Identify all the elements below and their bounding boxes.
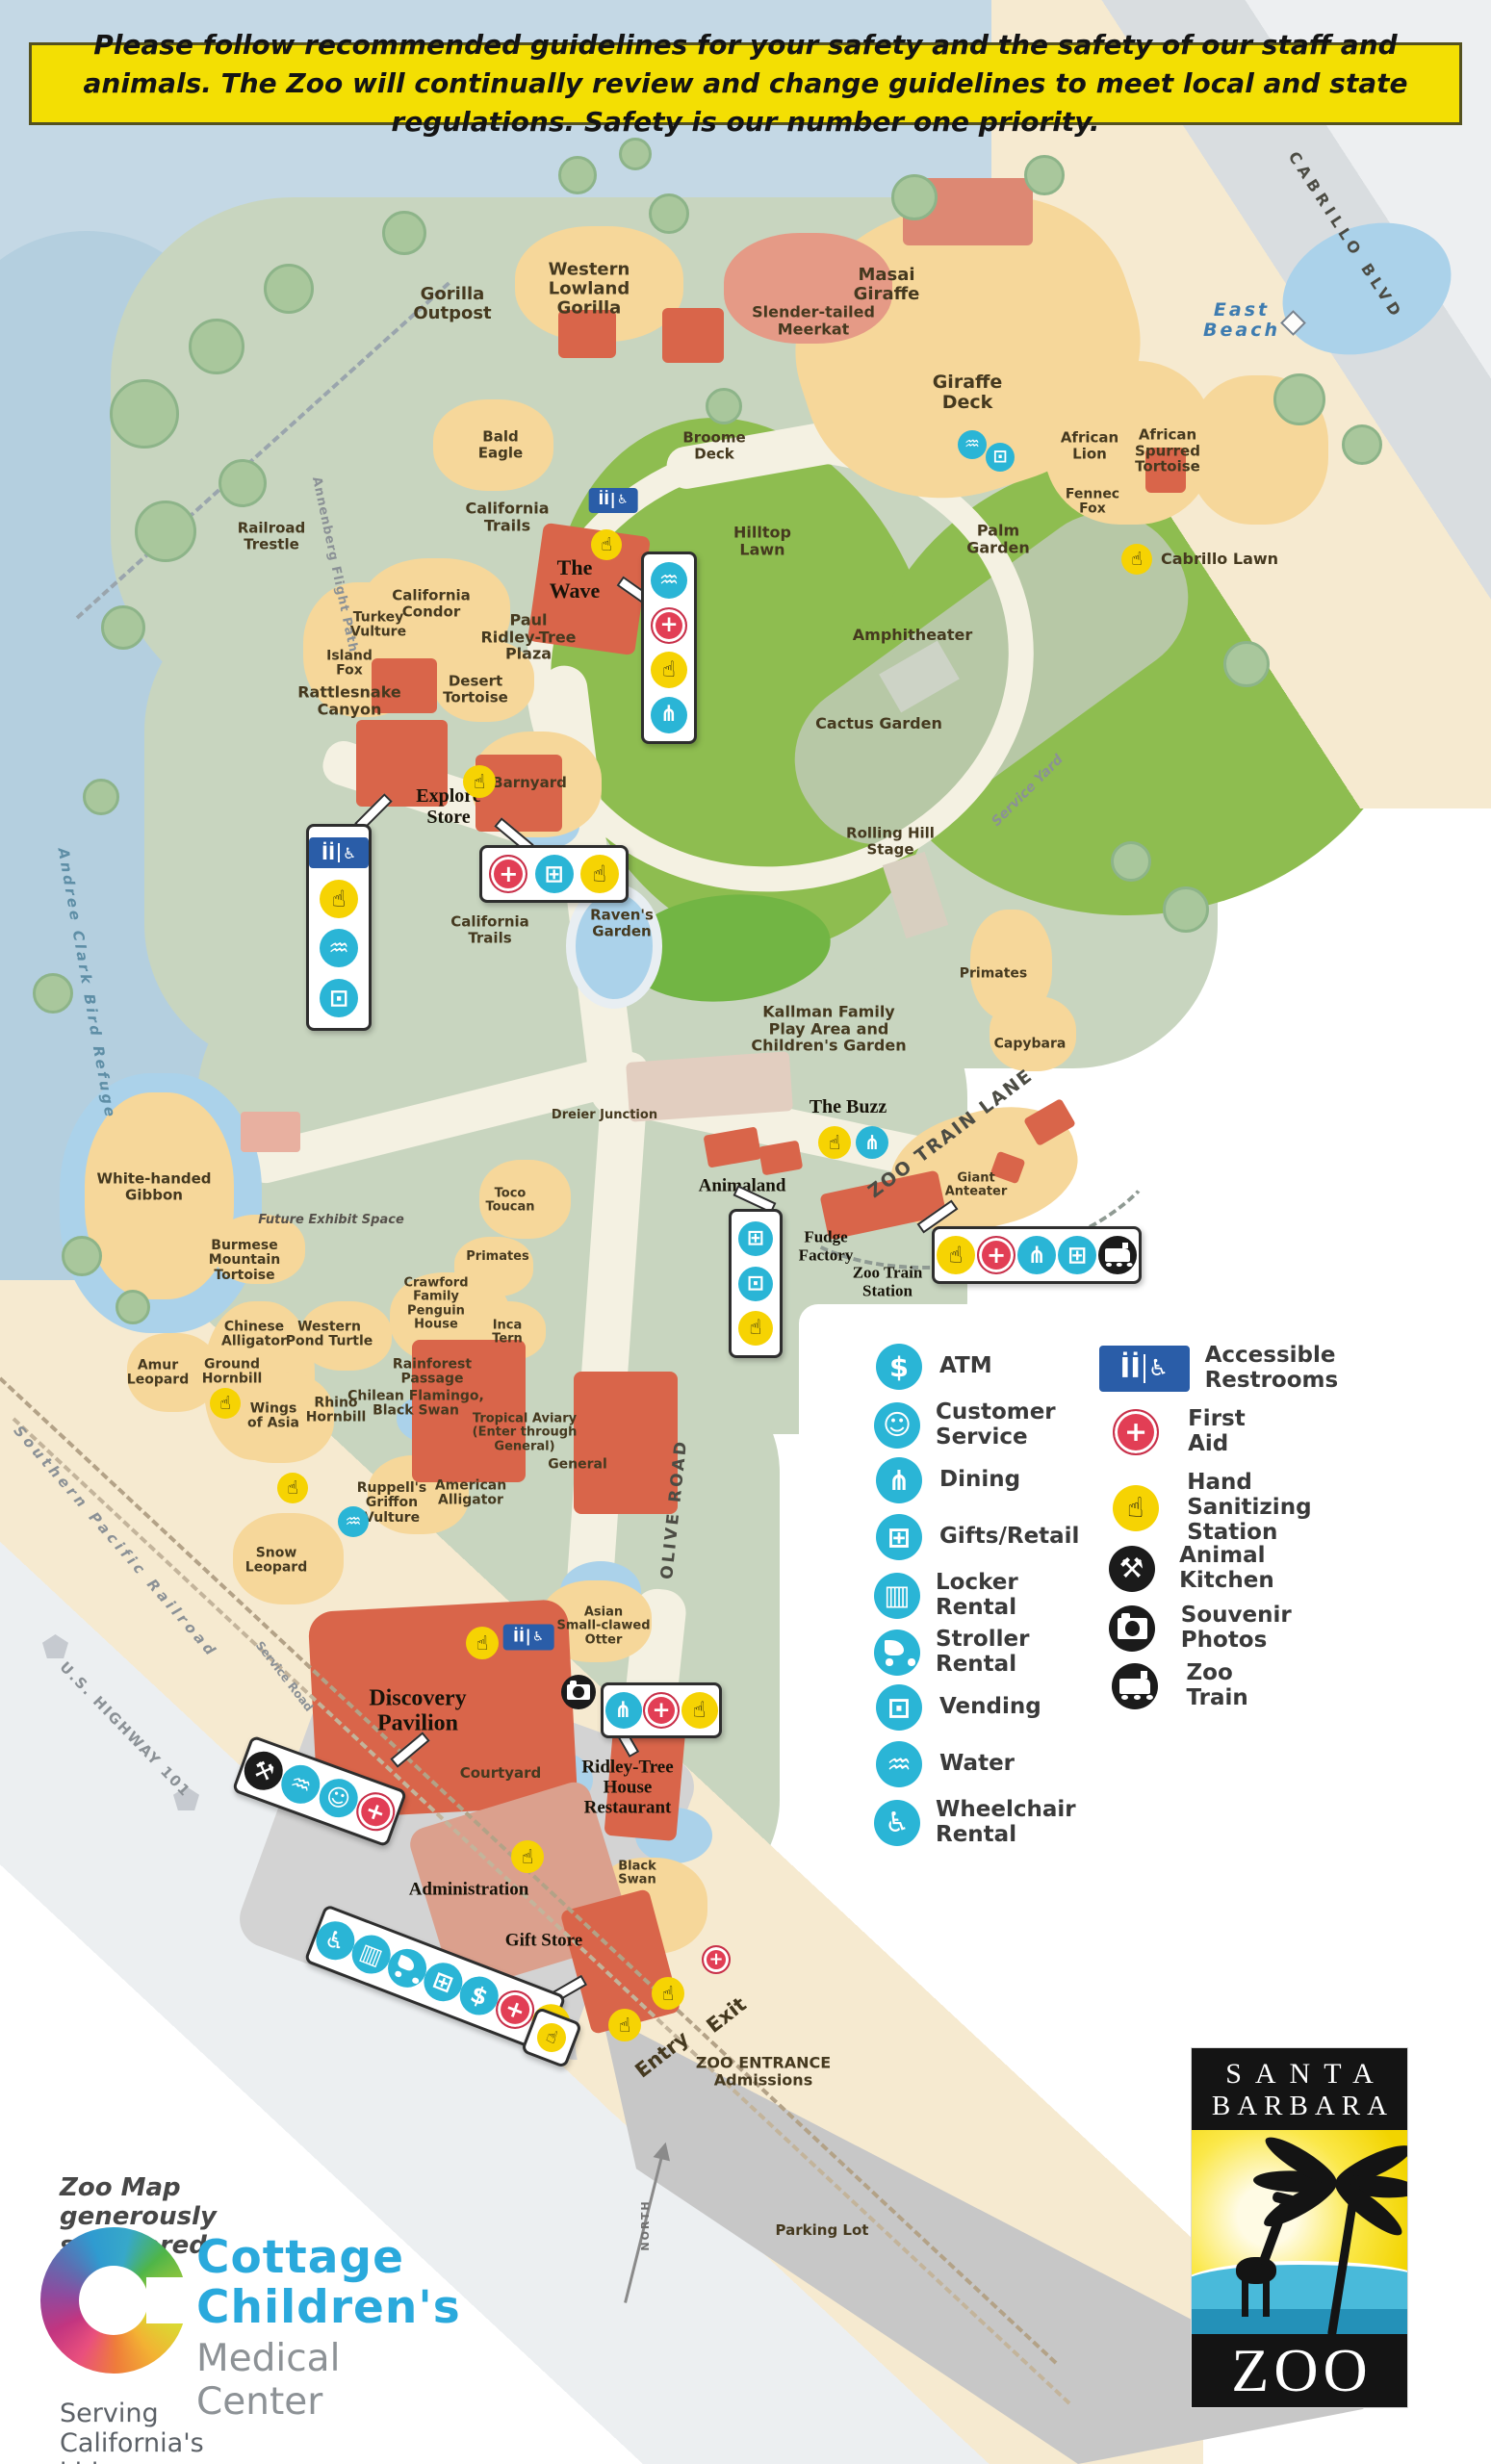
map-label: Island Fox bbox=[326, 650, 373, 680]
gifts-icon: ⊞ bbox=[535, 855, 574, 893]
map-label: Giraffe Deck bbox=[933, 372, 1003, 413]
legend-item-locker: ▥Locker Rental bbox=[874, 1571, 1022, 1621]
map-label: Slender-tailed Meerkat bbox=[752, 303, 875, 337]
legend-icon-wrap: $ bbox=[874, 1344, 924, 1390]
map-label: Western Pond Turtle bbox=[286, 1321, 373, 1350]
sponsor-name-line2: Children's bbox=[196, 2281, 461, 2334]
map-label: Paul Ridley-Tree Plaza bbox=[480, 612, 576, 663]
firstaid-icon: + bbox=[702, 1945, 731, 1974]
tree bbox=[219, 459, 267, 507]
legend-item-gifts: ⊞Gifts/Retail bbox=[874, 1514, 1079, 1560]
legend-item-firstaid: +First Aid bbox=[1099, 1407, 1269, 1457]
legend-icon-wrap: ☺ bbox=[874, 1402, 920, 1449]
hand-icon: ☝ bbox=[608, 2009, 641, 2041]
map-label: California Trails bbox=[465, 500, 549, 533]
map-label: General bbox=[548, 1457, 607, 1472]
map-label: Kallman Family Play Area and Children's … bbox=[751, 1004, 906, 1055]
dining-icon: ⋔ bbox=[651, 697, 687, 733]
legend-item-wheelchair: ♿Wheelchair Rental bbox=[874, 1798, 1080, 1848]
tree bbox=[116, 1290, 150, 1324]
dining-icon: ⋔ bbox=[605, 1692, 642, 1729]
cottage-logo-hole bbox=[79, 2266, 149, 2336]
legend-icon-wrap bbox=[1099, 1605, 1166, 1652]
legend-label: Dining bbox=[939, 1468, 1020, 1493]
water-icon: ♒ bbox=[651, 562, 687, 599]
map-callout: İİ♿☝♒⊡ bbox=[306, 824, 372, 1031]
legend-item-hand: ☝Hand Sanitizing Station bbox=[1099, 1471, 1335, 1545]
map-label: Dreier Junction bbox=[552, 1109, 657, 1122]
legend-label: Customer Service bbox=[936, 1400, 1060, 1450]
firstaid-icon: + bbox=[1113, 1409, 1159, 1455]
map-label: Capybara bbox=[994, 1037, 1067, 1051]
restrooms-icon: İİ♿ bbox=[1099, 1346, 1190, 1392]
map-label: Black Swan bbox=[618, 1861, 656, 1888]
map-label: The Wave bbox=[550, 556, 601, 603]
map-label: Inca Tern bbox=[492, 1320, 523, 1347]
dining-icon: ⋔ bbox=[856, 1126, 888, 1159]
legend-label: Gifts/Retail bbox=[939, 1525, 1079, 1550]
safety-banner: Please follow recommended guidelines for… bbox=[29, 42, 1462, 125]
general-building bbox=[574, 1372, 678, 1514]
sponsor-name-line1: Cottage bbox=[196, 2231, 404, 2284]
map-label: Ridley-Tree House Restaurant bbox=[581, 1758, 673, 1819]
map-label: American Alligator bbox=[435, 1479, 506, 1509]
legend-icon-wrap bbox=[1099, 1663, 1170, 1709]
legend-label: Zoo Train bbox=[1186, 1661, 1272, 1711]
map-label: Palm Garden bbox=[966, 522, 1030, 555]
legend-item-customer: ☺Customer Service bbox=[874, 1400, 1060, 1450]
map-label: Burmese Mountain Tortoise bbox=[209, 1239, 280, 1283]
map-label: Rattlesnake Canyon bbox=[297, 683, 401, 717]
legend-icon-wrap: ⋔ bbox=[874, 1457, 924, 1503]
firstaid-icon: + bbox=[977, 1236, 1015, 1274]
hand-icon: ☝ bbox=[681, 1692, 718, 1729]
map-callout: +⊞☝ bbox=[479, 845, 629, 903]
tree bbox=[619, 138, 652, 170]
tree bbox=[83, 779, 119, 815]
map-label: Masai Giraffe bbox=[854, 266, 920, 304]
atm-icon: $ bbox=[876, 1344, 922, 1390]
map-label: Gorilla Outpost bbox=[413, 285, 491, 323]
map-label: Courtyard bbox=[460, 1765, 542, 1782]
legend-item-stroller: Stroller Rental bbox=[874, 1628, 1033, 1678]
map-label: Amphitheater bbox=[853, 627, 972, 644]
tree bbox=[1024, 155, 1065, 195]
giraffe-leg bbox=[1263, 2280, 1270, 2317]
map-label: Ground Hornbill bbox=[202, 1358, 263, 1388]
map-label: Barnyard bbox=[492, 775, 567, 791]
restrooms-icon: İİ♿ bbox=[589, 488, 638, 513]
map-label: Western Lowland Gorilla bbox=[549, 260, 630, 317]
firstaid-icon: + bbox=[651, 607, 687, 644]
tree bbox=[891, 174, 938, 220]
firstaid-icon: + bbox=[643, 1692, 680, 1729]
hand-icon: ☝ bbox=[651, 652, 687, 688]
vending-icon: ⊡ bbox=[320, 979, 358, 1017]
legend-icon-wrap: ☝ bbox=[1099, 1485, 1171, 1531]
water-icon: ♒ bbox=[958, 430, 987, 459]
cottage-logo-gap bbox=[146, 2277, 196, 2323]
map-label: Giant Anteater bbox=[945, 1172, 1008, 1200]
water-icon: ♒ bbox=[338, 1506, 369, 1537]
legend-icon-wrap: ▥ bbox=[874, 1573, 920, 1619]
legend-item-atm: $ATM bbox=[874, 1344, 992, 1390]
sponsor-name-line3: Medical Center bbox=[196, 2337, 340, 2424]
map-label: Snow Leopard bbox=[245, 1547, 307, 1577]
legend-label: Vending bbox=[939, 1695, 1041, 1720]
customer-icon: ☺ bbox=[874, 1402, 920, 1449]
map-label: African Lion bbox=[1061, 430, 1118, 462]
zoo-logo-artwork bbox=[1192, 2130, 1407, 2334]
hand-icon: ☝ bbox=[738, 1311, 773, 1346]
legend-icon-wrap: ⊞ bbox=[874, 1514, 924, 1560]
legend-item-animalkitchen: ⚒Animal Kitchen bbox=[1099, 1544, 1306, 1594]
legend-label: Hand Sanitizing Station bbox=[1187, 1471, 1335, 1545]
map-label: Amur Leopard bbox=[127, 1359, 189, 1389]
legend-label: Accessible Restrooms bbox=[1205, 1344, 1345, 1394]
gifts-icon: ⊞ bbox=[1058, 1236, 1096, 1274]
water-icon: ♒ bbox=[276, 1759, 325, 1809]
map-label: The Buzz bbox=[810, 1096, 887, 1117]
zoo-logo-footer: ZOO bbox=[1192, 2334, 1407, 2407]
hand-icon: ☝ bbox=[652, 1977, 684, 2010]
dining-icon: ⋔ bbox=[1017, 1236, 1056, 1274]
zoo-logo-header: SANTA BARBARA bbox=[1192, 2048, 1407, 2130]
camera-icon bbox=[561, 1675, 596, 1709]
map-label: Wings of Asia bbox=[247, 1402, 299, 1432]
map-label: Parking Lot bbox=[776, 2222, 869, 2239]
tree bbox=[110, 379, 179, 449]
legend-label: Stroller Rental bbox=[936, 1628, 1033, 1678]
legend-icon-wrap: ⊡ bbox=[874, 1684, 924, 1731]
hand-icon: ☝ bbox=[320, 880, 358, 918]
building bbox=[241, 1112, 300, 1152]
firstaid-icon: + bbox=[350, 1786, 399, 1835]
tree bbox=[1163, 886, 1209, 933]
logo-wave-dark bbox=[1192, 2309, 1407, 2334]
map-label: Zoo Train Station bbox=[853, 1264, 923, 1299]
dining-icon: ⋔ bbox=[876, 1457, 922, 1503]
map-label: White-handed Gibbon bbox=[96, 1171, 211, 1203]
hand-icon: ☝ bbox=[466, 1627, 499, 1659]
legend-icon-wrap: ⚒ bbox=[1099, 1546, 1164, 1592]
restrooms-icon: İİ♿ bbox=[309, 837, 369, 868]
legend-label: ATM bbox=[939, 1354, 992, 1379]
map-callout: ☝+⋔⊞ bbox=[932, 1226, 1142, 1284]
map-label: Primates bbox=[466, 1250, 528, 1264]
map-label: Hilltop Lawn bbox=[733, 524, 791, 557]
tree bbox=[1223, 641, 1270, 687]
legend-item-water: ♒Water bbox=[874, 1741, 1015, 1787]
map-label: Primates bbox=[960, 966, 1028, 981]
hand-icon: ☝ bbox=[591, 529, 622, 560]
tree bbox=[189, 319, 244, 374]
locker-icon: ▥ bbox=[874, 1573, 920, 1619]
map-label: Turkey Vulture bbox=[350, 611, 406, 641]
map-label: Chilean Flamingo, Black Swan bbox=[347, 1390, 484, 1420]
map-callout: ♒+☝⋔ bbox=[641, 552, 697, 744]
legend-label: Water bbox=[939, 1752, 1015, 1777]
legend-label: Locker Rental bbox=[936, 1571, 1022, 1621]
building bbox=[662, 308, 724, 363]
tree bbox=[649, 193, 689, 234]
map-label: Cactus Garden bbox=[815, 715, 942, 732]
tree bbox=[706, 388, 742, 424]
sponsor-tagline: Serving California's kids. bbox=[60, 2399, 204, 2464]
giraffe-leg bbox=[1242, 2280, 1248, 2317]
cottage-logo-icon bbox=[40, 2227, 187, 2374]
water-icon: ♒ bbox=[320, 929, 358, 967]
tree bbox=[382, 211, 426, 255]
hand-icon: ☝ bbox=[533, 2019, 571, 2057]
map-label: ZOO ENTRANCE Admissions bbox=[696, 2054, 831, 2088]
map-label: California Trails bbox=[450, 914, 529, 946]
legend-icon-wrap: + bbox=[1099, 1409, 1172, 1455]
water-icon: ♒ bbox=[876, 1741, 922, 1787]
logo-barbara-text: BARBARA bbox=[1192, 2091, 1407, 2122]
map-label: Broome Deck bbox=[682, 430, 745, 462]
hand-icon: ☝ bbox=[463, 765, 496, 798]
customer-icon: ☺ bbox=[314, 1773, 363, 1822]
tree bbox=[558, 156, 597, 194]
legend-label: Souvenir Photos bbox=[1181, 1604, 1322, 1654]
hand-icon: ☝ bbox=[580, 855, 619, 893]
map-label: Toco Toucan bbox=[485, 1188, 534, 1216]
map-label: Desert Tortoise bbox=[443, 674, 508, 706]
map-label: Gift Store bbox=[505, 1932, 582, 1952]
hand-icon: ☝ bbox=[511, 1840, 544, 1873]
hand-icon: ☝ bbox=[1113, 1485, 1159, 1531]
tree bbox=[1273, 373, 1325, 425]
tree bbox=[264, 264, 314, 314]
map-label: Future Exhibit Space bbox=[258, 1214, 404, 1227]
map-label: Crawford Family Penguin House bbox=[403, 1276, 468, 1331]
vending-icon: ⊡ bbox=[738, 1267, 773, 1301]
map-callout: ⊞⊡☝ bbox=[729, 1209, 783, 1358]
map-label: Tropical Aviary (Enter through General) bbox=[473, 1413, 578, 1454]
tree bbox=[135, 500, 196, 562]
legend-item-train: Zoo Train bbox=[1099, 1661, 1272, 1711]
gifts-icon: ⊞ bbox=[738, 1221, 773, 1256]
map-label: Cabrillo Lawn bbox=[1161, 551, 1278, 568]
legend-icon-wrap: ♒ bbox=[874, 1741, 924, 1787]
map-callout: ⋔+☝ bbox=[601, 1682, 722, 1738]
legend-label: Animal Kitchen bbox=[1179, 1544, 1306, 1594]
firstaid-icon: + bbox=[489, 855, 527, 893]
stroller-icon bbox=[874, 1630, 920, 1676]
map-label: Rainforest Passage bbox=[393, 1358, 472, 1388]
map-label: Discovery Pavilion bbox=[369, 1686, 466, 1737]
animalkitchen-icon: ⚒ bbox=[1109, 1546, 1155, 1592]
tree bbox=[33, 973, 73, 1014]
vending-icon: ⊡ bbox=[986, 443, 1015, 472]
wheelchair-icon: ♿ bbox=[874, 1800, 920, 1846]
map-label: East Beach bbox=[1203, 300, 1280, 341]
hand-icon: ☝ bbox=[210, 1388, 241, 1419]
zoo-map-page: Gorilla OutpostWestern Lowland GorillaSl… bbox=[0, 0, 1491, 2464]
map-label: Fudge Factory bbox=[799, 1228, 854, 1264]
map-label: Administration bbox=[409, 1881, 529, 1901]
logo-santa-text: SANTA bbox=[1192, 2058, 1407, 2091]
legend-item-restrooms: İİ♿Accessible Restrooms bbox=[1099, 1344, 1345, 1394]
map-label: Rolling Hill Stage bbox=[846, 826, 935, 858]
tree bbox=[101, 605, 145, 650]
map-label: Bald Eagle bbox=[478, 429, 523, 461]
vending-icon: ⊡ bbox=[876, 1684, 922, 1731]
gifts-icon: ⊞ bbox=[876, 1514, 922, 1560]
logo-zoo-text: ZOO bbox=[1231, 2336, 1373, 2404]
legend-label: Wheelchair Rental bbox=[936, 1798, 1080, 1848]
hand-icon: ☝ bbox=[937, 1236, 975, 1274]
hand-icon: ☝ bbox=[277, 1473, 308, 1503]
map-label: African Spurred Tortoise bbox=[1135, 426, 1200, 475]
map-label: Railroad Trestle bbox=[238, 521, 306, 552]
legend-icon-wrap: ♿ bbox=[874, 1800, 920, 1846]
safety-banner-text: Please follow recommended guidelines for… bbox=[61, 26, 1431, 141]
hand-icon: ☝ bbox=[1121, 544, 1152, 575]
camera-icon bbox=[1109, 1605, 1155, 1652]
tree bbox=[1111, 841, 1151, 882]
legend-icon-wrap: İİ♿ bbox=[1099, 1346, 1190, 1392]
legend-label: First Aid bbox=[1188, 1407, 1269, 1457]
zoo-logo: SANTA BARBARA ZOO bbox=[1192, 2048, 1407, 2407]
legend-item-dining: ⋔Dining bbox=[874, 1457, 1020, 1503]
restrooms-icon: İİ♿ bbox=[503, 1625, 554, 1651]
hand-icon: ☝ bbox=[818, 1126, 851, 1159]
map-label: Chinese Alligator bbox=[221, 1321, 287, 1350]
map-label: Asian Small-clawed Otter bbox=[556, 1606, 650, 1648]
tree bbox=[62, 1236, 102, 1276]
map-label: Raven's Garden bbox=[590, 908, 654, 939]
train-icon bbox=[1098, 1236, 1137, 1274]
legend-item-vending: ⊡Vending bbox=[874, 1684, 1041, 1731]
logo-wave bbox=[1192, 2261, 1407, 2313]
train-icon bbox=[1112, 1663, 1158, 1709]
giraffe-head bbox=[1272, 2191, 1297, 2206]
map-label: NORTH bbox=[640, 2199, 652, 2250]
tree bbox=[1342, 424, 1382, 465]
legend-icon-wrap bbox=[874, 1630, 920, 1676]
map-label: Fennec Fox bbox=[1066, 488, 1119, 518]
legend-item-camera: Souvenir Photos bbox=[1099, 1604, 1322, 1654]
